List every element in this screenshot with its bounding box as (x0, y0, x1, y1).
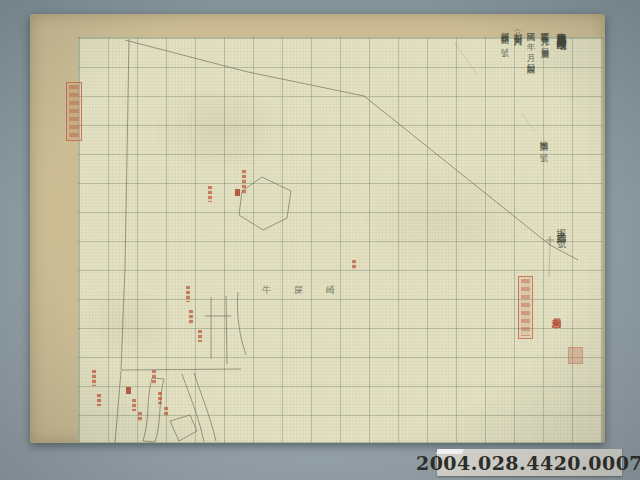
parcel-annotation-mark (126, 387, 131, 394)
parcel-strip (205, 296, 231, 364)
parcel-annotation-mark (158, 392, 162, 404)
parcel-annotation-mark (164, 407, 168, 417)
paper-scratch (522, 114, 535, 132)
survey-date-column: 民國五二年九月 日測量 (541, 25, 550, 45)
paper-scratch (454, 42, 477, 74)
parcel-banana (143, 378, 164, 442)
map-title-column: 南投縣草屯鎮月眉厝段牛屎崎小段地圖 (556, 24, 566, 33)
section-number-label: 堀之內第二號 (556, 220, 566, 232)
boundary-right-short (549, 245, 550, 277)
small-red-seal (568, 347, 583, 364)
catalog-number-text: 2004.028.4420.0007 (416, 452, 640, 474)
boundary-bottom-horizontal (121, 369, 241, 370)
boundary-tick (546, 236, 554, 246)
parcel-hexagon (239, 177, 291, 230)
sheet-number-column: 地圖第 號 (540, 134, 549, 148)
parcel-annotation-mark (92, 370, 96, 386)
red-seal-stamp (66, 82, 82, 141)
parcel-annotation-mark (242, 170, 246, 194)
red-seal-stamp (518, 276, 533, 339)
catalog-number-label: 2004.028.4420.0007 (437, 449, 622, 476)
parcel-annotation-mark (138, 412, 142, 422)
parcel-curves (182, 373, 216, 442)
map-sheet (30, 14, 605, 443)
parcel-annotation-mark (198, 330, 202, 342)
parcel-annotation-mark (152, 370, 156, 384)
parcel-annotation-mark (97, 394, 101, 406)
parcel-annotation-mark (235, 189, 240, 196)
place-name-label: 牛屎崎 (262, 284, 358, 297)
division-note-column: 分割（劃入河川） (514, 25, 523, 33)
boundary-diagonal (125, 40, 578, 260)
boundary-left-vertical (121, 39, 129, 370)
boundary-left-lower (115, 371, 121, 443)
parcel-strip-curve (237, 292, 246, 355)
parcel-annotation-mark (208, 186, 212, 202)
parcel-annotation-mark (132, 399, 136, 411)
parcel-annotation-mark (186, 286, 190, 302)
photo-background: 南投縣草屯鎮月眉厝段牛屎崎小段地圖 民國五二年九月 日測量 地圖第 號 民國 年… (0, 0, 640, 480)
parcel-annotation-mark (352, 260, 356, 270)
draft-date-column: 民國 年 月 日製圖 (527, 25, 536, 61)
parcel-small-polygon (170, 415, 197, 441)
map-linework (78, 37, 603, 443)
parcel-annotation-mark (189, 310, 193, 324)
river-register-column: 河川圖籍第…號 (501, 25, 510, 42)
